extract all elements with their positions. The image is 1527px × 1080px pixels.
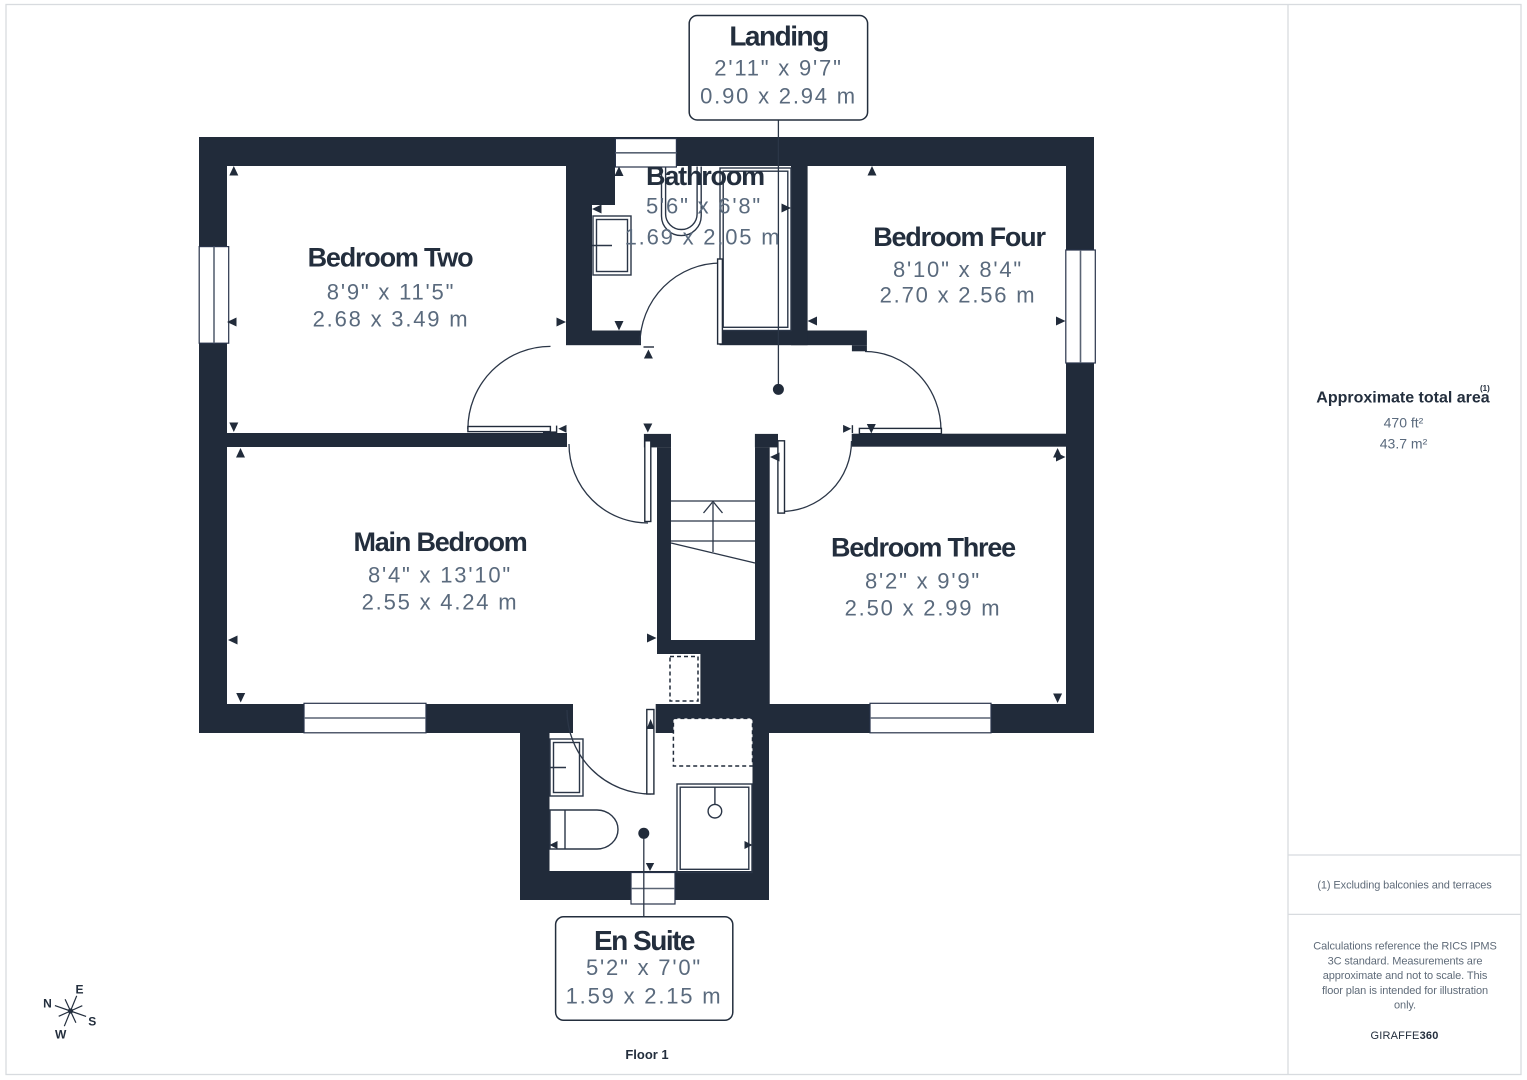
svg-text:W: W <box>55 1028 67 1042</box>
svg-text:Main Bedroom: Main Bedroom <box>353 527 526 557</box>
svg-text:floor plan is intended for ill: floor plan is intended for illustration <box>1322 985 1488 997</box>
svg-text:E: E <box>75 983 83 997</box>
svg-text:43.7 m²: 43.7 m² <box>1380 436 1428 452</box>
svg-text:8'4" x 13'10": 8'4" x 13'10" <box>368 563 512 588</box>
svg-text:Floor 1: Floor 1 <box>625 1047 668 1062</box>
svg-text:1.69 x 2.05 m: 1.69 x 2.05 m <box>625 225 782 250</box>
svg-text:2.55 x 4.24 m: 2.55 x 4.24 m <box>362 590 519 615</box>
svg-text:5'6" x 6'8": 5'6" x 6'8" <box>646 194 762 219</box>
svg-text:2'11" x 9'7": 2'11" x 9'7" <box>714 56 842 81</box>
svg-text:(1): (1) <box>1480 384 1490 393</box>
svg-text:Bathroom: Bathroom <box>646 161 764 191</box>
svg-text:Bedroom Three: Bedroom Three <box>831 533 1016 563</box>
svg-text:1.59 x 2.15 m: 1.59 x 2.15 m <box>566 984 723 1009</box>
svg-text:2.70 x 2.56 m: 2.70 x 2.56 m <box>880 283 1037 308</box>
svg-text:S: S <box>88 1015 96 1029</box>
svg-text:Calculations reference the RIC: Calculations reference the RICS IPMS <box>1313 941 1496 953</box>
svg-text:2.50 x 2.99 m: 2.50 x 2.99 m <box>845 596 1002 621</box>
svg-text:Approximate total area: Approximate total area <box>1316 390 1489 407</box>
svg-text:8'9" x 11'5": 8'9" x 11'5" <box>327 280 455 305</box>
svg-text:Bedroom Four: Bedroom Four <box>873 222 1046 252</box>
svg-text:0.90 x 2.94 m: 0.90 x 2.94 m <box>700 84 857 109</box>
svg-text:GIRAFFE360: GIRAFFE360 <box>1370 1030 1438 1042</box>
svg-text:only.: only. <box>1394 1000 1416 1012</box>
svg-text:Landing: Landing <box>729 21 828 52</box>
svg-text:5'2" x 7'0": 5'2" x 7'0" <box>586 955 702 980</box>
svg-text:approximate and not to scale.: approximate and not to scale. This <box>1323 970 1488 982</box>
svg-text:(1) Excluding balconies and te: (1) Excluding balconies and terraces <box>1317 879 1492 891</box>
svg-text:En Suite: En Suite <box>594 925 695 956</box>
svg-text:470 ft²: 470 ft² <box>1384 415 1424 431</box>
svg-text:2.68 x 3.49 m: 2.68 x 3.49 m <box>313 307 470 332</box>
svg-text:3C standard. Measurements are: 3C standard. Measurements are <box>1328 955 1483 967</box>
svg-text:Bedroom Two: Bedroom Two <box>308 243 473 273</box>
svg-text:N: N <box>43 997 52 1011</box>
svg-text:8'10" x 8'4": 8'10" x 8'4" <box>893 257 1023 282</box>
svg-text:8'2" x 9'9": 8'2" x 9'9" <box>865 569 981 594</box>
